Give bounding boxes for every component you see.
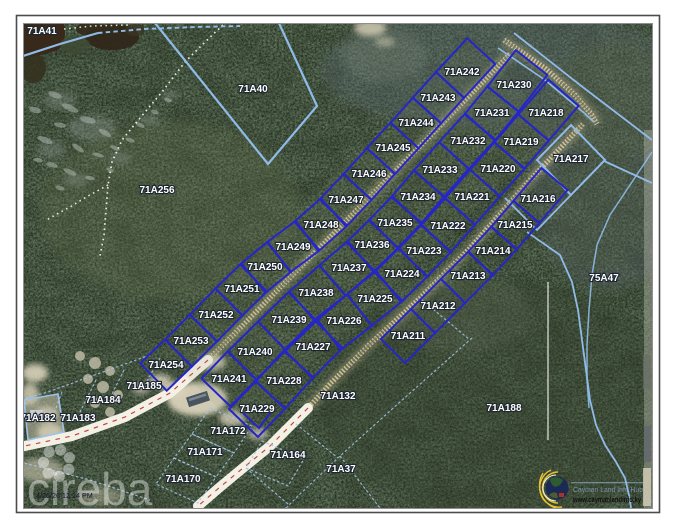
svg-text:71A212: 71A212 bbox=[420, 301, 455, 312]
svg-text:71A232: 71A232 bbox=[450, 136, 485, 147]
svg-text:71A214: 71A214 bbox=[475, 246, 510, 257]
svg-text:71A248: 71A248 bbox=[303, 220, 338, 231]
svg-text:71A221: 71A221 bbox=[454, 192, 489, 203]
svg-text:71A188: 71A188 bbox=[486, 403, 521, 414]
svg-text:71A253: 71A253 bbox=[173, 336, 208, 347]
svg-text:Cayman Land Info Hub: Cayman Land Info Hub bbox=[573, 487, 643, 494]
svg-text:71A231: 71A231 bbox=[474, 108, 509, 119]
svg-text:71A251: 71A251 bbox=[224, 284, 259, 295]
svg-text:71A41: 71A41 bbox=[27, 26, 57, 37]
svg-text:71A132: 71A132 bbox=[320, 391, 355, 402]
svg-text:71A184: 71A184 bbox=[85, 395, 120, 406]
svg-text:71A216: 71A216 bbox=[520, 194, 555, 205]
svg-text:71A238: 71A238 bbox=[298, 288, 333, 299]
svg-text:71A40: 71A40 bbox=[238, 84, 268, 95]
svg-text:71A239: 71A239 bbox=[271, 315, 306, 326]
svg-text:71A222: 71A222 bbox=[430, 221, 465, 232]
svg-text:71A211: 71A211 bbox=[391, 331, 426, 342]
svg-text:71A252: 71A252 bbox=[198, 310, 233, 321]
svg-text:71A182: 71A182 bbox=[20, 413, 55, 424]
svg-text:71A237: 71A237 bbox=[331, 263, 366, 274]
svg-text:71A235: 71A235 bbox=[377, 218, 412, 229]
svg-text:71A227: 71A227 bbox=[295, 342, 330, 353]
svg-text:71A246: 71A246 bbox=[351, 169, 386, 180]
svg-text:71A213: 71A213 bbox=[450, 271, 485, 282]
svg-text:71A228: 71A228 bbox=[266, 376, 301, 387]
svg-text:71A218: 71A218 bbox=[528, 108, 563, 119]
svg-text:71A229: 71A229 bbox=[239, 404, 274, 415]
svg-text:71A244: 71A244 bbox=[398, 118, 433, 129]
svg-text:71A37: 71A37 bbox=[326, 464, 356, 475]
svg-text:71A254: 71A254 bbox=[148, 360, 183, 371]
svg-text:71A223: 71A223 bbox=[406, 246, 441, 257]
svg-text:71A234: 71A234 bbox=[400, 192, 435, 203]
svg-text:71A164: 71A164 bbox=[270, 450, 305, 461]
svg-text:71A247: 71A247 bbox=[328, 195, 363, 206]
svg-text:cireba: cireba bbox=[27, 463, 153, 515]
svg-text:71A185: 71A185 bbox=[126, 381, 161, 392]
svg-text:71A230: 71A230 bbox=[496, 80, 531, 91]
svg-text:71A241: 71A241 bbox=[211, 374, 246, 385]
svg-text:71A240: 71A240 bbox=[237, 347, 272, 358]
svg-text:71A256: 71A256 bbox=[139, 185, 174, 196]
svg-text:71A215: 71A215 bbox=[497, 220, 532, 231]
svg-text:71A249: 71A249 bbox=[275, 242, 310, 253]
svg-text:71A243: 71A243 bbox=[420, 93, 455, 104]
svg-text:71A217: 71A217 bbox=[553, 154, 588, 165]
svg-text:71A233: 71A233 bbox=[422, 165, 457, 176]
svg-text:71A170: 71A170 bbox=[165, 474, 200, 485]
svg-text:75A47: 75A47 bbox=[589, 273, 619, 284]
svg-text:71A226: 71A226 bbox=[326, 316, 361, 327]
svg-text:71A220: 71A220 bbox=[480, 164, 515, 175]
svg-text:71A225: 71A225 bbox=[357, 294, 392, 305]
svg-text:71A171: 71A171 bbox=[187, 447, 222, 458]
svg-text:71A236: 71A236 bbox=[354, 240, 389, 251]
svg-text:71A183: 71A183 bbox=[60, 413, 95, 424]
svg-text:71A250: 71A250 bbox=[247, 262, 282, 273]
svg-text:www.caymanlandinfo.ky: www.caymanlandinfo.ky bbox=[572, 497, 641, 504]
svg-text:71A242: 71A242 bbox=[444, 67, 479, 78]
svg-text:71A245: 71A245 bbox=[375, 143, 410, 154]
svg-text:4/26/26 12:24 PM: 4/26/26 12:24 PM bbox=[36, 491, 93, 500]
svg-text:71A172: 71A172 bbox=[210, 426, 245, 437]
svg-text:71A224: 71A224 bbox=[384, 269, 419, 280]
svg-text:71A219: 71A219 bbox=[503, 137, 538, 148]
